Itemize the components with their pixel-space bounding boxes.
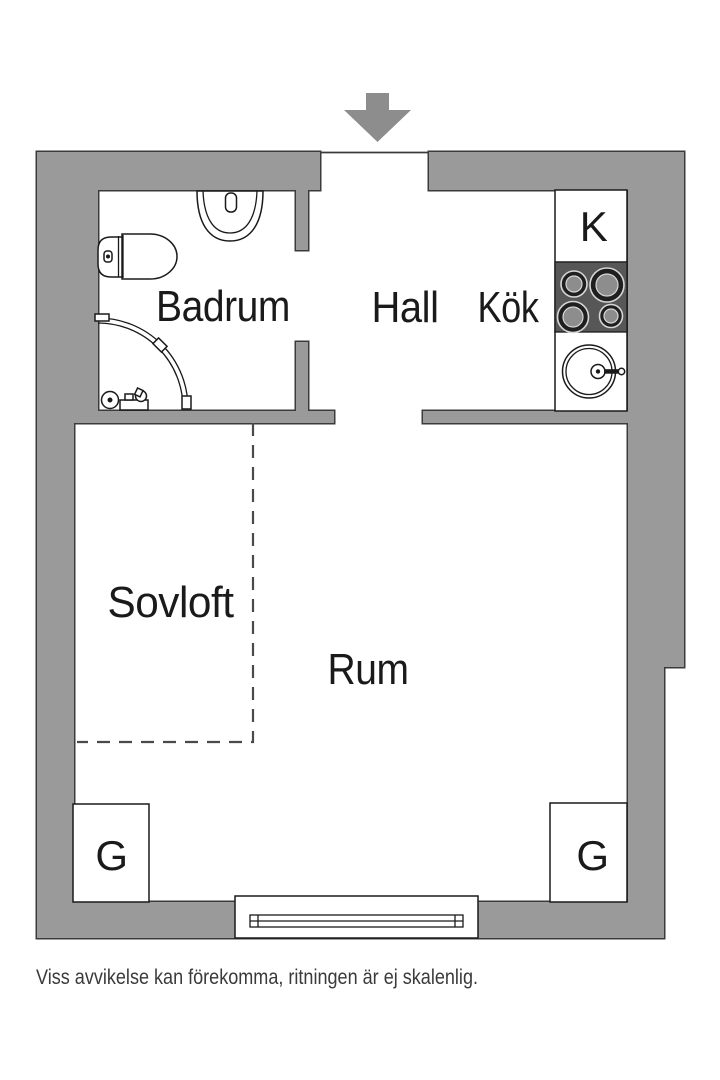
label-badrum: Badrum: [156, 282, 290, 331]
window-icon: [235, 896, 478, 938]
label-kok: Kök: [478, 283, 540, 332]
label-wardrobe-right: G: [576, 832, 608, 879]
label-hall: Hall: [372, 283, 439, 332]
toilet-icon: [98, 234, 177, 279]
label-wardrobe-left: G: [95, 832, 127, 879]
floor-drain-icon: [102, 392, 119, 409]
label-fridge-k: K: [580, 203, 608, 250]
room-labels: Badrum Hall Kök K Sovloft Rum G G: [95, 203, 608, 879]
label-sovloft: Sovloft: [108, 578, 234, 627]
disclaimer-caption: Viss avvikelse kan förekomma, ritningen …: [36, 966, 478, 989]
label-rum: Rum: [328, 645, 409, 694]
washbasin-icon: [197, 191, 263, 241]
floorplan-page: Badrum Hall Kök K Sovloft Rum G G Viss a…: [0, 0, 720, 1080]
shower-mixer-icon: [120, 388, 148, 410]
entrance-arrow-icon: [344, 93, 411, 142]
floorplan-drawing: Badrum Hall Kök K Sovloft Rum G G Viss a…: [0, 0, 720, 1080]
stove-icon: [555, 262, 627, 333]
